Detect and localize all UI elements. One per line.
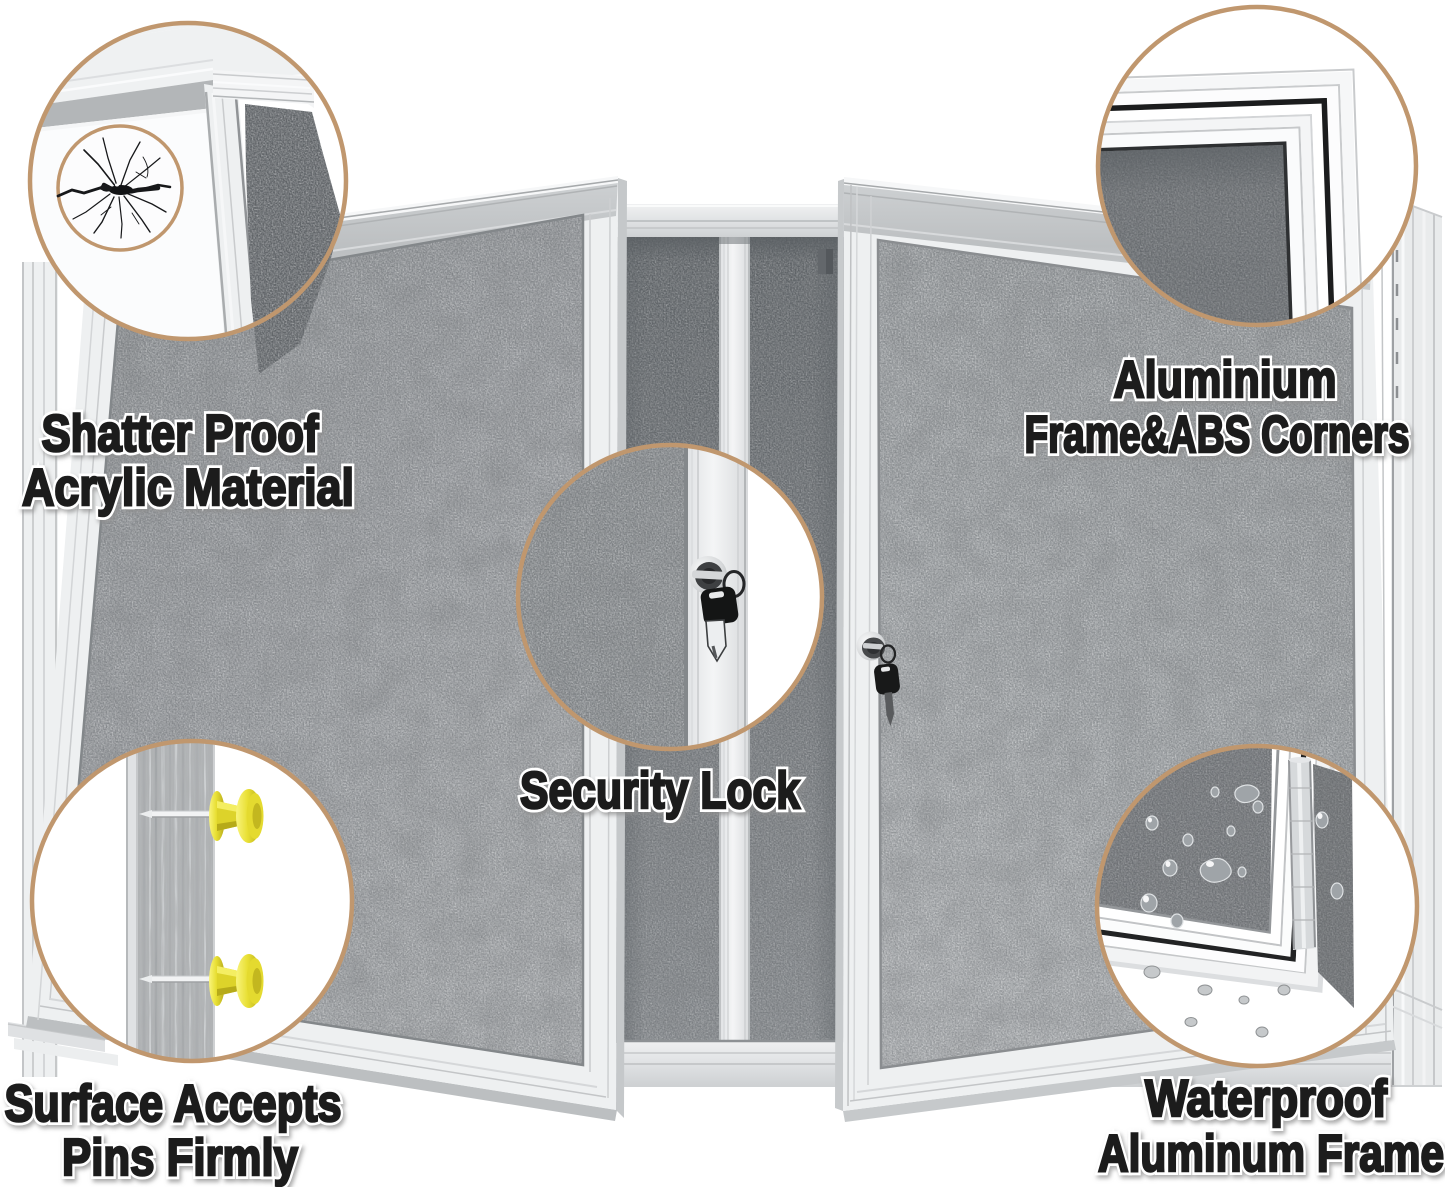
- svg-text:Frame&ABS Corners: Frame&ABS Corners: [1025, 406, 1410, 464]
- svg-text:Pins Firmly: Pins Firmly: [62, 1129, 298, 1187]
- svg-text:Shatter Proof: Shatter Proof: [42, 405, 320, 463]
- svg-text:Security Lock: Security Lock: [520, 762, 800, 820]
- svg-text:Aluminium: Aluminium: [1114, 351, 1337, 409]
- svg-text:Surface Accepts: Surface Accepts: [5, 1075, 342, 1133]
- svg-text:Waterproof: Waterproof: [1145, 1070, 1388, 1128]
- svg-text:Acrylic Material: Acrylic Material: [22, 459, 354, 517]
- svg-text:Aluminum Frame: Aluminum Frame: [1098, 1125, 1444, 1183]
